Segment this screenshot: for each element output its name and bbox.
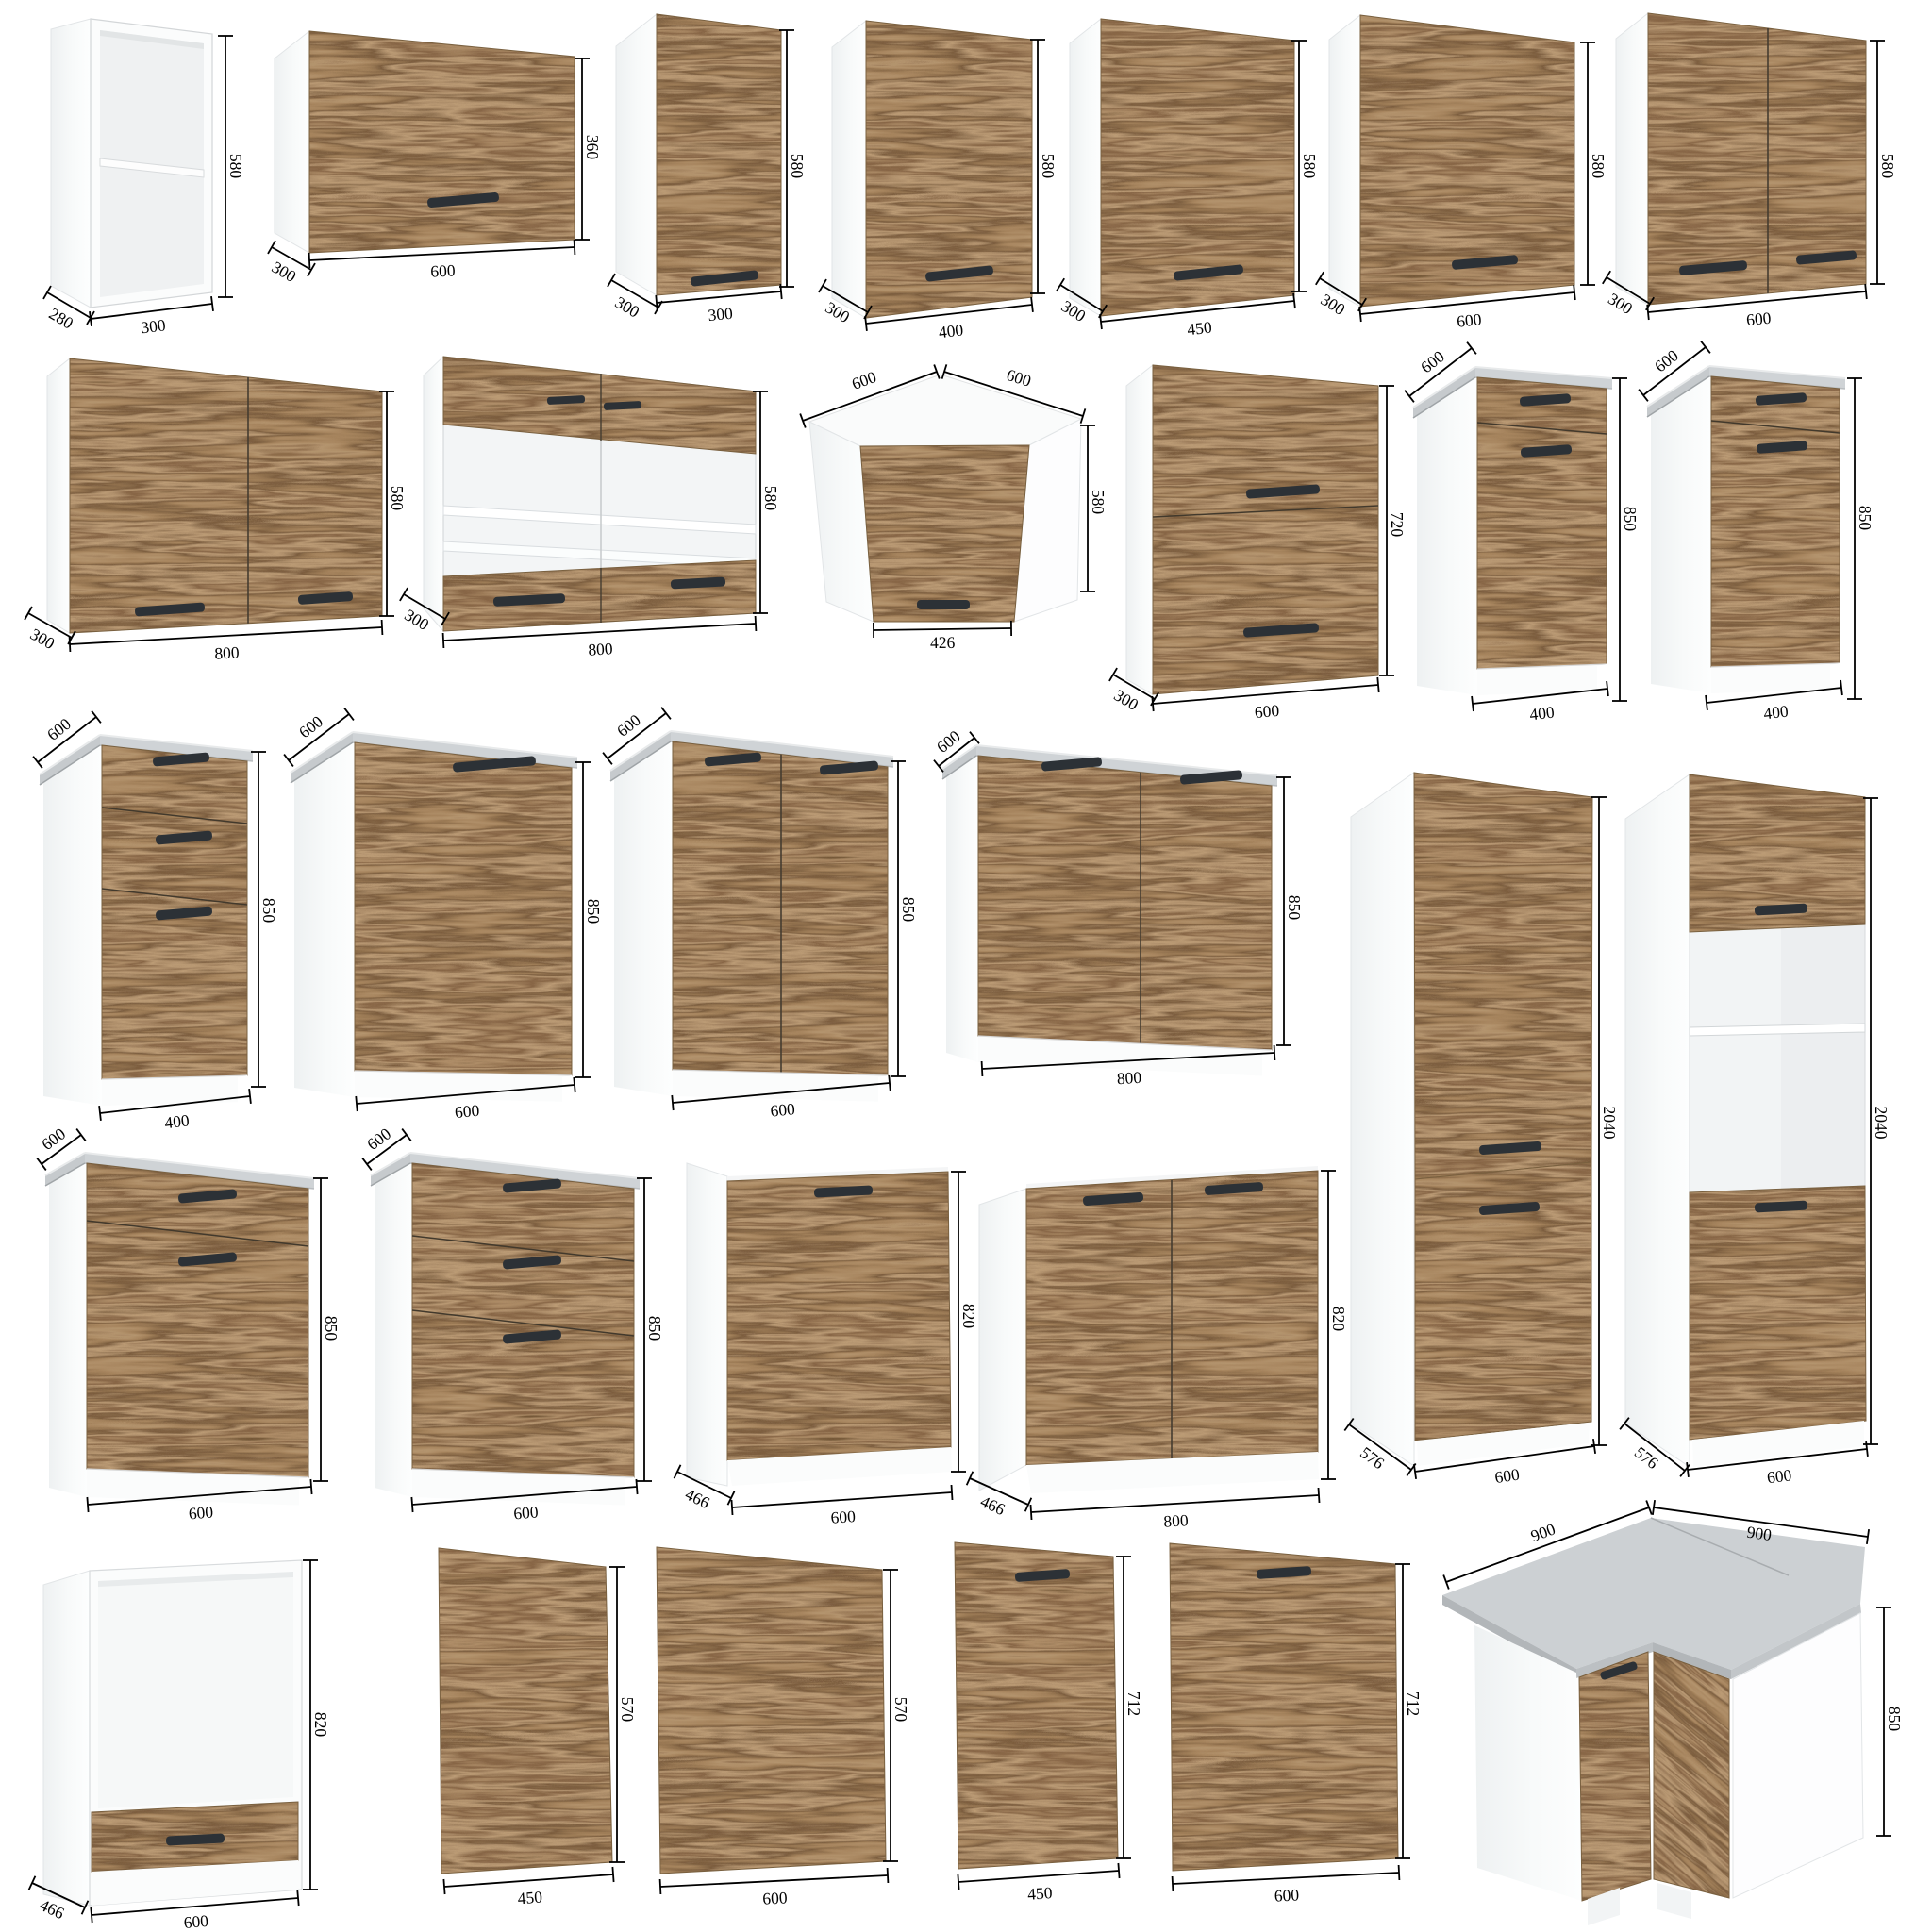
svg-text:580: 580: [788, 154, 807, 179]
svg-text:800: 800: [1163, 1510, 1190, 1531]
svg-text:600: 600: [1766, 1465, 1793, 1487]
svg-text:300: 300: [708, 304, 734, 325]
svg-text:850: 850: [1856, 506, 1874, 531]
svg-text:850: 850: [645, 1316, 664, 1341]
svg-text:712: 712: [1124, 1691, 1143, 1716]
svg-text:720: 720: [1388, 512, 1407, 538]
svg-text:580: 580: [226, 154, 245, 179]
svg-text:580: 580: [1878, 154, 1897, 179]
svg-text:580: 580: [388, 486, 407, 511]
svg-text:850: 850: [1285, 895, 1304, 921]
svg-text:450: 450: [1026, 1883, 1053, 1904]
svg-text:600: 600: [1254, 701, 1280, 722]
svg-text:600: 600: [513, 1502, 540, 1523]
svg-text:400: 400: [1762, 702, 1790, 724]
svg-text:800: 800: [1116, 1068, 1142, 1088]
svg-text:800: 800: [214, 642, 241, 662]
svg-text:600: 600: [430, 260, 456, 280]
svg-text:600: 600: [188, 1502, 214, 1523]
svg-text:850: 850: [1885, 1707, 1904, 1732]
svg-text:600: 600: [1456, 309, 1482, 331]
svg-text:580: 580: [1300, 154, 1319, 179]
svg-text:900: 900: [1746, 1523, 1774, 1544]
svg-text:570: 570: [891, 1697, 910, 1723]
svg-text:400: 400: [1528, 703, 1556, 724]
svg-text:2040: 2040: [1600, 1107, 1619, 1140]
svg-text:820: 820: [311, 1712, 330, 1738]
svg-text:300: 300: [140, 315, 167, 337]
svg-text:820: 820: [1329, 1307, 1348, 1332]
svg-text:800: 800: [588, 639, 614, 658]
svg-text:400: 400: [163, 1110, 191, 1132]
svg-text:600: 600: [1274, 1885, 1299, 1905]
svg-text:400: 400: [938, 320, 965, 341]
svg-text:450: 450: [1186, 318, 1212, 340]
svg-text:600: 600: [830, 1507, 857, 1527]
svg-text:600: 600: [183, 1911, 209, 1932]
svg-text:580: 580: [761, 486, 780, 511]
svg-text:850: 850: [1621, 507, 1640, 532]
svg-text:600: 600: [1493, 1465, 1521, 1488]
svg-text:850: 850: [584, 899, 603, 924]
svg-text:360: 360: [583, 135, 602, 160]
svg-text:426: 426: [930, 633, 956, 652]
svg-text:600: 600: [1745, 308, 1772, 329]
svg-text:600: 600: [454, 1101, 480, 1122]
svg-text:570: 570: [618, 1697, 637, 1723]
svg-text:850: 850: [259, 898, 278, 924]
svg-text:820: 820: [959, 1304, 978, 1329]
svg-text:580: 580: [1089, 490, 1108, 515]
svg-text:600: 600: [770, 1099, 796, 1120]
svg-text:580: 580: [1039, 154, 1058, 179]
svg-text:2040: 2040: [1872, 1107, 1890, 1140]
svg-text:450: 450: [517, 1887, 543, 1907]
svg-text:580: 580: [1589, 154, 1607, 179]
svg-text:850: 850: [322, 1316, 341, 1341]
svg-text:600: 600: [762, 1888, 788, 1907]
svg-text:712: 712: [1404, 1691, 1423, 1716]
svg-text:850: 850: [899, 897, 918, 923]
